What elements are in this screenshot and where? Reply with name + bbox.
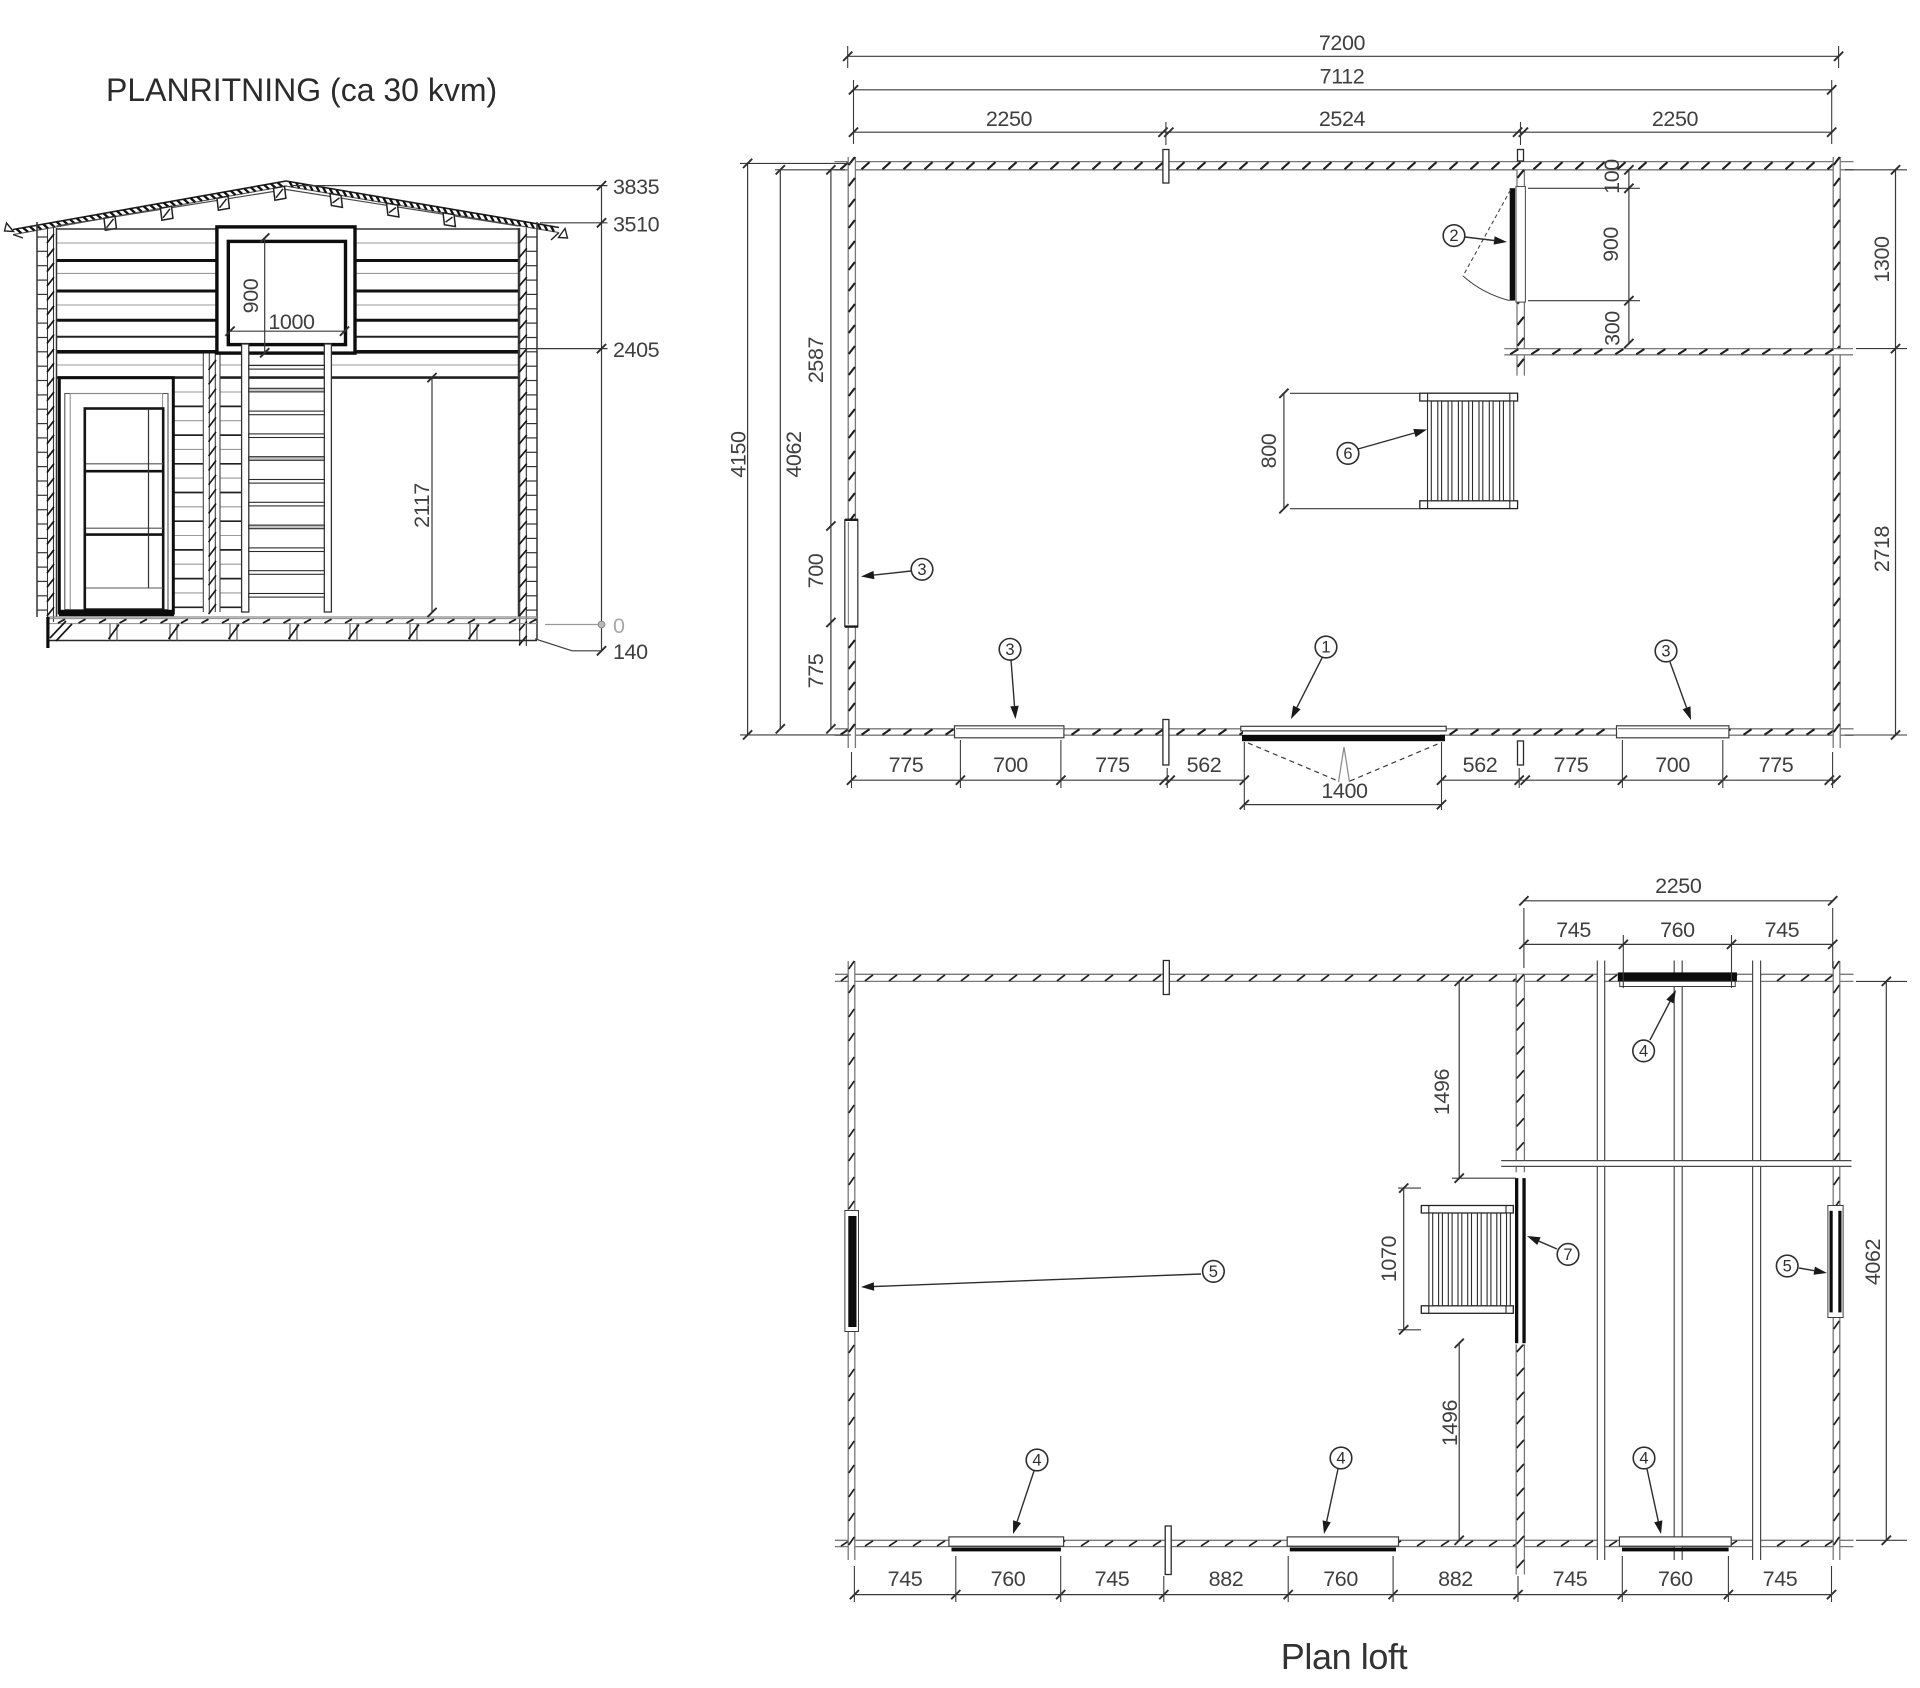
svg-text:700: 700 bbox=[1655, 753, 1690, 777]
svg-text:562: 562 bbox=[1463, 753, 1498, 777]
svg-text:3: 3 bbox=[917, 561, 926, 579]
svg-text:775: 775 bbox=[804, 653, 828, 688]
svg-text:7200: 7200 bbox=[1319, 31, 1366, 55]
svg-text:745: 745 bbox=[1553, 1567, 1588, 1591]
svg-text:2117: 2117 bbox=[410, 483, 434, 528]
svg-text:3: 3 bbox=[1661, 643, 1670, 661]
svg-text:2405: 2405 bbox=[613, 338, 660, 362]
svg-text:882: 882 bbox=[1209, 1567, 1244, 1591]
svg-text:7: 7 bbox=[1563, 1246, 1572, 1264]
svg-text:745: 745 bbox=[888, 1567, 923, 1591]
svg-text:1300: 1300 bbox=[1870, 236, 1894, 283]
svg-text:760: 760 bbox=[991, 1567, 1026, 1591]
svg-text:2250: 2250 bbox=[1655, 874, 1702, 898]
svg-text:2250: 2250 bbox=[1652, 107, 1699, 131]
svg-text:760: 760 bbox=[1660, 918, 1695, 942]
svg-text:300: 300 bbox=[1601, 311, 1625, 346]
svg-text:1496: 1496 bbox=[1430, 1068, 1454, 1115]
svg-text:2: 2 bbox=[1449, 227, 1458, 245]
svg-text:1496: 1496 bbox=[1438, 1399, 1462, 1446]
svg-text:4062: 4062 bbox=[782, 431, 806, 477]
svg-text:775: 775 bbox=[1759, 753, 1794, 777]
svg-text:140: 140 bbox=[613, 640, 648, 664]
svg-text:3: 3 bbox=[1005, 641, 1014, 659]
svg-text:700: 700 bbox=[804, 553, 828, 588]
svg-text:3835: 3835 bbox=[613, 175, 660, 199]
svg-text:PLANRITNING (ca 30 kvm): PLANRITNING (ca 30 kvm) bbox=[106, 72, 497, 108]
svg-text:6: 6 bbox=[1343, 445, 1352, 463]
svg-text:3510: 3510 bbox=[613, 213, 660, 237]
svg-text:800: 800 bbox=[1257, 433, 1281, 468]
svg-text:1070: 1070 bbox=[1377, 1235, 1401, 1282]
svg-text:775: 775 bbox=[889, 753, 924, 777]
svg-text:760: 760 bbox=[1323, 1567, 1358, 1591]
svg-text:4150: 4150 bbox=[727, 431, 751, 478]
svg-text:745: 745 bbox=[1556, 918, 1591, 942]
svg-text:900: 900 bbox=[239, 278, 263, 313]
svg-text:2718: 2718 bbox=[1870, 525, 1894, 572]
svg-text:4062: 4062 bbox=[1861, 1239, 1885, 1285]
svg-text:562: 562 bbox=[1187, 753, 1222, 777]
svg-text:7112: 7112 bbox=[1320, 65, 1365, 89]
svg-text:760: 760 bbox=[1658, 1567, 1693, 1591]
svg-text:0: 0 bbox=[613, 614, 625, 638]
svg-text:700: 700 bbox=[993, 753, 1028, 777]
svg-text:5: 5 bbox=[1209, 1263, 1218, 1281]
svg-text:1400: 1400 bbox=[1321, 779, 1368, 803]
svg-text:4: 4 bbox=[1639, 1043, 1648, 1061]
svg-text:1: 1 bbox=[1321, 639, 1330, 657]
svg-text:745: 745 bbox=[1765, 918, 1800, 942]
svg-text:745: 745 bbox=[1763, 1567, 1798, 1591]
svg-text:775: 775 bbox=[1554, 753, 1589, 777]
svg-text:4: 4 bbox=[1639, 1450, 1648, 1468]
svg-text:2250: 2250 bbox=[986, 107, 1033, 131]
svg-text:900: 900 bbox=[1599, 227, 1623, 262]
svg-text:4: 4 bbox=[1032, 1452, 1041, 1470]
svg-text:745: 745 bbox=[1095, 1567, 1130, 1591]
svg-text:100: 100 bbox=[1600, 159, 1624, 194]
svg-text:1000: 1000 bbox=[268, 310, 315, 334]
svg-text:2587: 2587 bbox=[804, 337, 828, 383]
svg-text:4: 4 bbox=[1336, 1450, 1345, 1468]
svg-text:2524: 2524 bbox=[1319, 107, 1366, 131]
svg-text:882: 882 bbox=[1438, 1567, 1473, 1591]
svg-text:Plan loft: Plan loft bbox=[1281, 1636, 1408, 1677]
svg-text:775: 775 bbox=[1095, 753, 1130, 777]
svg-text:5: 5 bbox=[1783, 1258, 1792, 1276]
